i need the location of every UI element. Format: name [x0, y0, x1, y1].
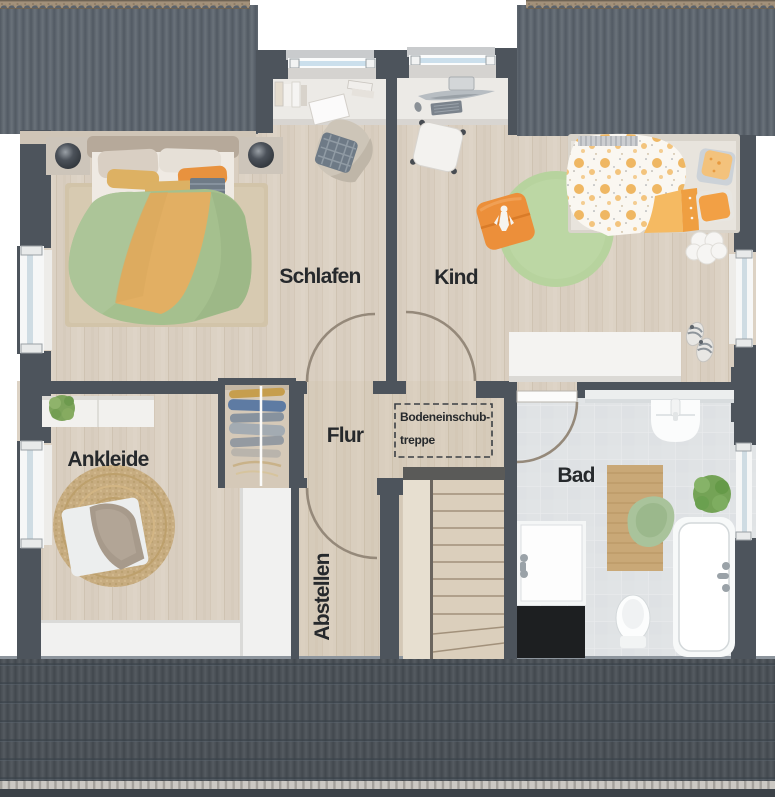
svg-text:Flur: Flur — [327, 424, 364, 447]
svg-text:Schlafen: Schlafen — [279, 265, 360, 288]
svg-text:Ankleide: Ankleide — [67, 448, 148, 471]
svg-text:Abstellen: Abstellen — [311, 553, 334, 640]
svg-text:Kind: Kind — [434, 266, 477, 289]
svg-text:Bad: Bad — [557, 464, 594, 487]
svg-text:treppe: treppe — [400, 433, 436, 447]
svg-text:Bodeneinschub-: Bodeneinschub- — [400, 410, 490, 424]
